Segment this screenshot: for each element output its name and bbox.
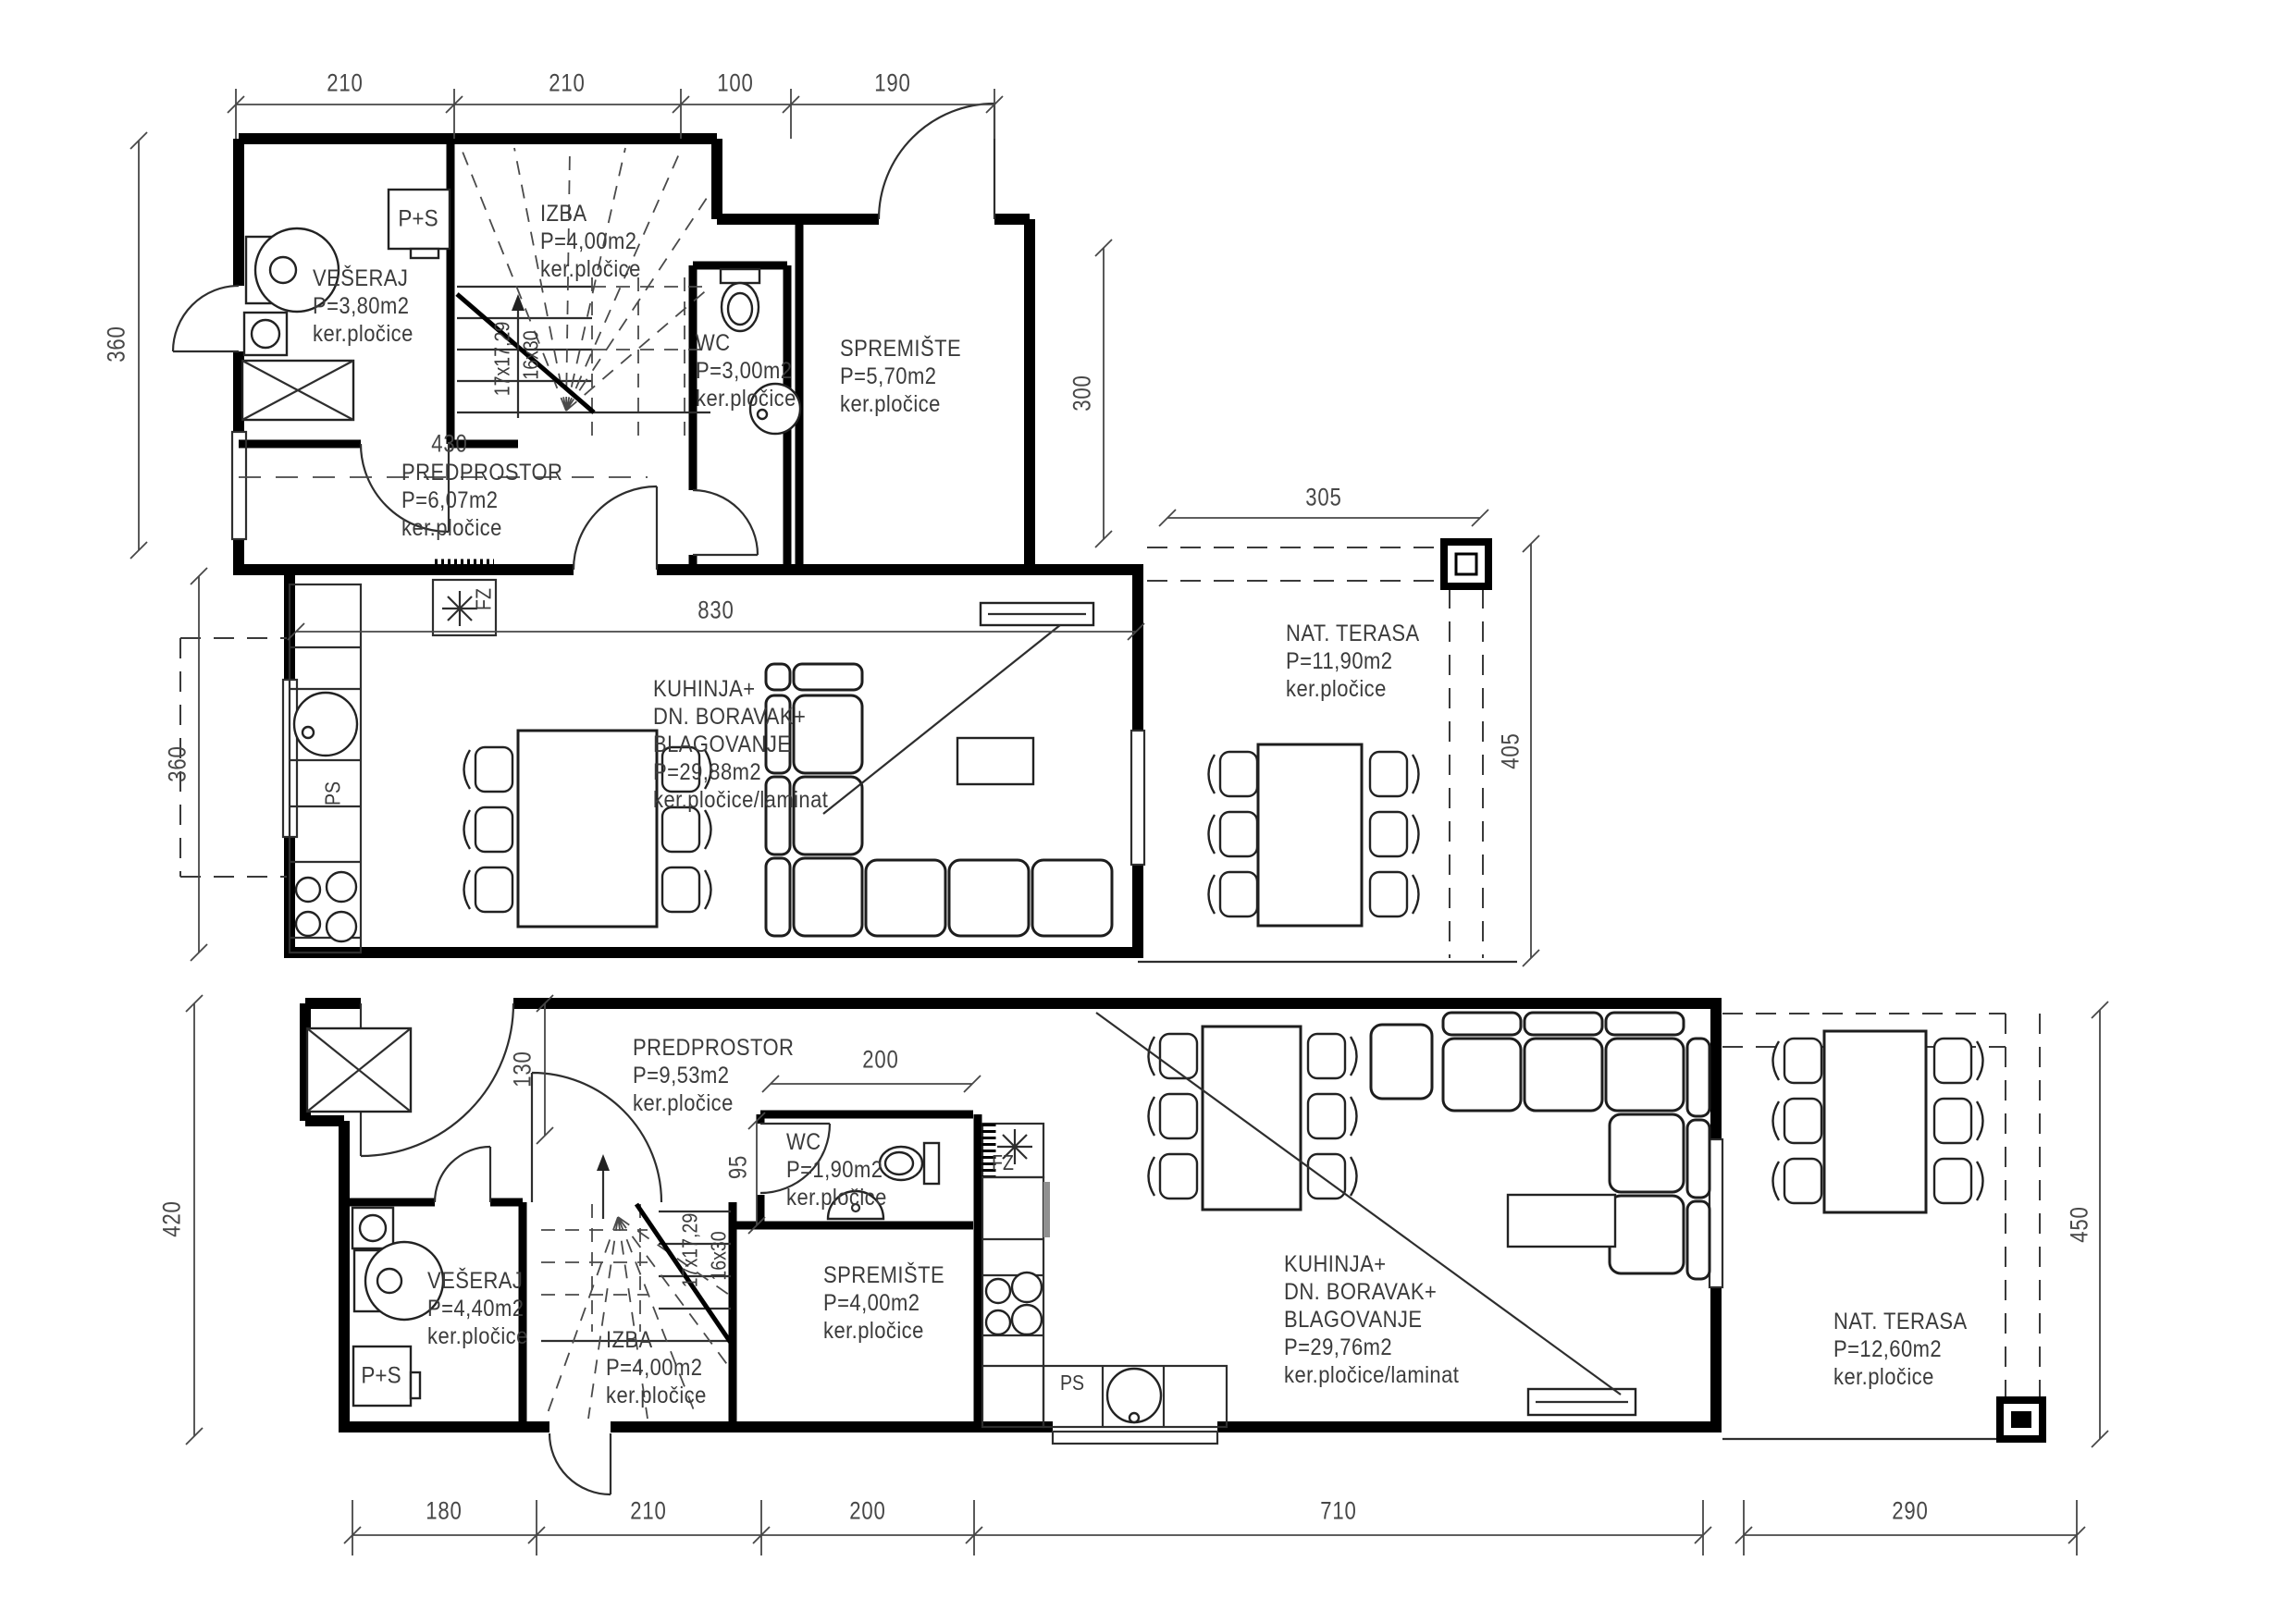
stair-spec-treads-lower: 16x30 bbox=[707, 1231, 732, 1280]
dim-bottom-5: 290 bbox=[1892, 1497, 1928, 1526]
dim-left-lower-unit: 420 bbox=[158, 1200, 187, 1236]
dim-terrace-depth-lower: 450 bbox=[2066, 1206, 2094, 1242]
room-area: P=1,90m2 bbox=[786, 1156, 887, 1184]
stair-spec-risers-upper: 17x17,29 bbox=[490, 322, 515, 396]
room-area: P=5,70m2 bbox=[840, 363, 961, 390]
room-name: PREDPROSTOR bbox=[633, 1034, 794, 1062]
room-name: BLAGOVANJE bbox=[653, 731, 828, 758]
room-label-veseraj-lower: VEŠERAJ P=4,40m2 ker.pločice bbox=[427, 1267, 528, 1350]
room-name: VEŠERAJ bbox=[313, 264, 414, 292]
room-name: IZBA bbox=[540, 200, 641, 227]
stair-spec-treads-upper: 16x30 bbox=[519, 330, 544, 379]
room-label-izba-upper: IZBA P=4,00m2 ker.pločice bbox=[540, 200, 641, 283]
stairs-upper bbox=[457, 148, 710, 442]
dim-terrace-depth-upper: 405 bbox=[1497, 732, 1525, 768]
sofa-lower bbox=[1371, 1013, 1710, 1279]
room-area: P=29,76m2 bbox=[1284, 1334, 1459, 1361]
room-floor: ker.pločice bbox=[1286, 675, 1420, 703]
room-label-wc-upper: WC P=3,00m2 ker.pločice bbox=[696, 329, 796, 412]
room-name: VEŠERAJ bbox=[427, 1267, 528, 1295]
stair-spec-risers-lower: 17x17,29 bbox=[678, 1213, 703, 1287]
room-name: SPREMIŠTE bbox=[840, 335, 961, 363]
room-label-kuhinja-lower: KUHINJA+ DN. BORAVAK+ BLAGOVANJE P=29,76… bbox=[1284, 1250, 1459, 1389]
floor-plan-sheet: VEŠERAJ P=3,80m2 ker.pločice IZBA P=4,00… bbox=[0, 0, 2296, 1623]
dim-entry-offset-lower: 130 bbox=[509, 1051, 537, 1087]
dishwasher-tag-upper: PS bbox=[321, 781, 346, 805]
room-label-predprostor-upper: PREDPROSTOR P=6,07m2 ker.pločice bbox=[401, 459, 562, 542]
room-name: KUHINJA+ bbox=[1284, 1250, 1459, 1278]
laundry-fixtures-lower bbox=[307, 1028, 443, 1406]
dim-terrace-width-upper: 305 bbox=[1305, 484, 1341, 512]
room-name: BLAGOVANJE bbox=[1284, 1306, 1459, 1334]
boiler-tag-lower: P+S bbox=[361, 1363, 401, 1390]
dim-bottom-1: 180 bbox=[426, 1497, 462, 1526]
dim-hall-width-upper: 430 bbox=[431, 430, 467, 459]
dim-left-lower: 360 bbox=[164, 745, 192, 781]
dim-right-upper: 300 bbox=[1068, 375, 1097, 411]
room-floor: ker.pločice/laminat bbox=[1284, 1361, 1459, 1389]
room-floor: ker.pločice bbox=[540, 255, 641, 283]
dim-top-2: 210 bbox=[549, 69, 585, 98]
room-floor: ker.pločice bbox=[606, 1382, 707, 1409]
room-name: IZBA bbox=[606, 1326, 707, 1354]
entry-projection-dashed bbox=[180, 638, 287, 877]
room-label-terasa-upper: NAT. TERASA P=11,90m2 ker.pločice bbox=[1286, 620, 1420, 703]
room-label-spremiste-upper: SPREMIŠTE P=5,70m2 ker.pločice bbox=[840, 335, 961, 418]
dim-left-upper: 360 bbox=[103, 326, 131, 362]
dim-bottom-3: 200 bbox=[849, 1497, 885, 1526]
freezer-tag-lower: FZ bbox=[992, 1150, 1014, 1175]
room-floor: ker.pločice/laminat bbox=[653, 786, 828, 814]
dim-interior-width-upper: 830 bbox=[697, 596, 734, 625]
room-label-terasa-lower: NAT. TERASA P=12,60m2 ker.pločice bbox=[1833, 1308, 1968, 1391]
room-label-wc-lower: WC P=1,90m2 ker.pločice bbox=[786, 1128, 887, 1211]
dim-top-4: 190 bbox=[874, 69, 910, 98]
dim-bottom-4: 710 bbox=[1320, 1497, 1356, 1526]
room-name: WC bbox=[696, 329, 796, 357]
room-label-predprostor-lower: PREDPROSTOR P=9,53m2 ker.pločice bbox=[633, 1034, 794, 1117]
room-area: P=4,00m2 bbox=[606, 1354, 707, 1382]
room-area: P=3,80m2 bbox=[313, 292, 414, 320]
room-label-spremiste-lower: SPREMIŠTE P=4,00m2 ker.pločice bbox=[823, 1261, 944, 1345]
dim-bottom-2: 210 bbox=[630, 1497, 666, 1526]
room-area: P=29,88m2 bbox=[653, 758, 828, 786]
dim-top-1: 210 bbox=[327, 69, 363, 98]
room-floor: ker.pločice bbox=[696, 385, 796, 412]
dishwasher-tag-lower: PS bbox=[1060, 1371, 1084, 1396]
room-area: P=12,60m2 bbox=[1833, 1335, 1968, 1363]
room-floor: ker.pločice bbox=[313, 320, 414, 348]
room-area: P=4,00m2 bbox=[823, 1289, 944, 1317]
room-area: P=9,53m2 bbox=[633, 1062, 794, 1089]
room-name: DN. BORAVAK+ bbox=[653, 703, 828, 731]
room-name: WC bbox=[786, 1128, 887, 1156]
boiler-tag-upper: P+S bbox=[398, 206, 438, 233]
room-area: P=4,40m2 bbox=[427, 1295, 528, 1322]
room-name: NAT. TERASA bbox=[1286, 620, 1420, 647]
room-name: DN. BORAVAK+ bbox=[1284, 1278, 1459, 1306]
room-floor: ker.pločice bbox=[786, 1184, 887, 1211]
dining-set-lower bbox=[1149, 1027, 1357, 1210]
room-name: KUHINJA+ bbox=[653, 675, 828, 703]
dim-top-3: 100 bbox=[717, 69, 753, 98]
room-name: NAT. TERASA bbox=[1833, 1308, 1968, 1335]
room-floor: ker.pločice bbox=[823, 1317, 944, 1345]
room-floor: ker.pločice bbox=[401, 514, 562, 542]
room-floor: ker.pločice bbox=[1833, 1363, 1968, 1391]
room-label-izba-lower: IZBA P=4,00m2 ker.pločice bbox=[606, 1326, 707, 1409]
room-floor: ker.pločice bbox=[840, 390, 961, 418]
room-area: P=4,00m2 bbox=[540, 227, 641, 255]
dim-wc-depth-lower: 95 bbox=[724, 1155, 753, 1179]
room-label-veseraj-upper: VEŠERAJ P=3,80m2 ker.pločice bbox=[313, 264, 414, 348]
room-area: P=3,00m2 bbox=[696, 357, 796, 385]
freezer-tag-upper: FZ bbox=[472, 588, 497, 610]
room-label-kuhinja-upper: KUHINJA+ DN. BORAVAK+ BLAGOVANJE P=29,88… bbox=[653, 675, 828, 814]
room-name: PREDPROSTOR bbox=[401, 459, 562, 486]
room-floor: ker.pločice bbox=[633, 1089, 794, 1117]
terrace-upper bbox=[1138, 542, 1517, 962]
room-name: SPREMIŠTE bbox=[823, 1261, 944, 1289]
room-floor: ker.pločice bbox=[427, 1322, 528, 1350]
room-area: P=11,90m2 bbox=[1286, 647, 1420, 675]
room-area: P=6,07m2 bbox=[401, 486, 562, 514]
dim-wc-width-lower: 200 bbox=[862, 1046, 898, 1075]
